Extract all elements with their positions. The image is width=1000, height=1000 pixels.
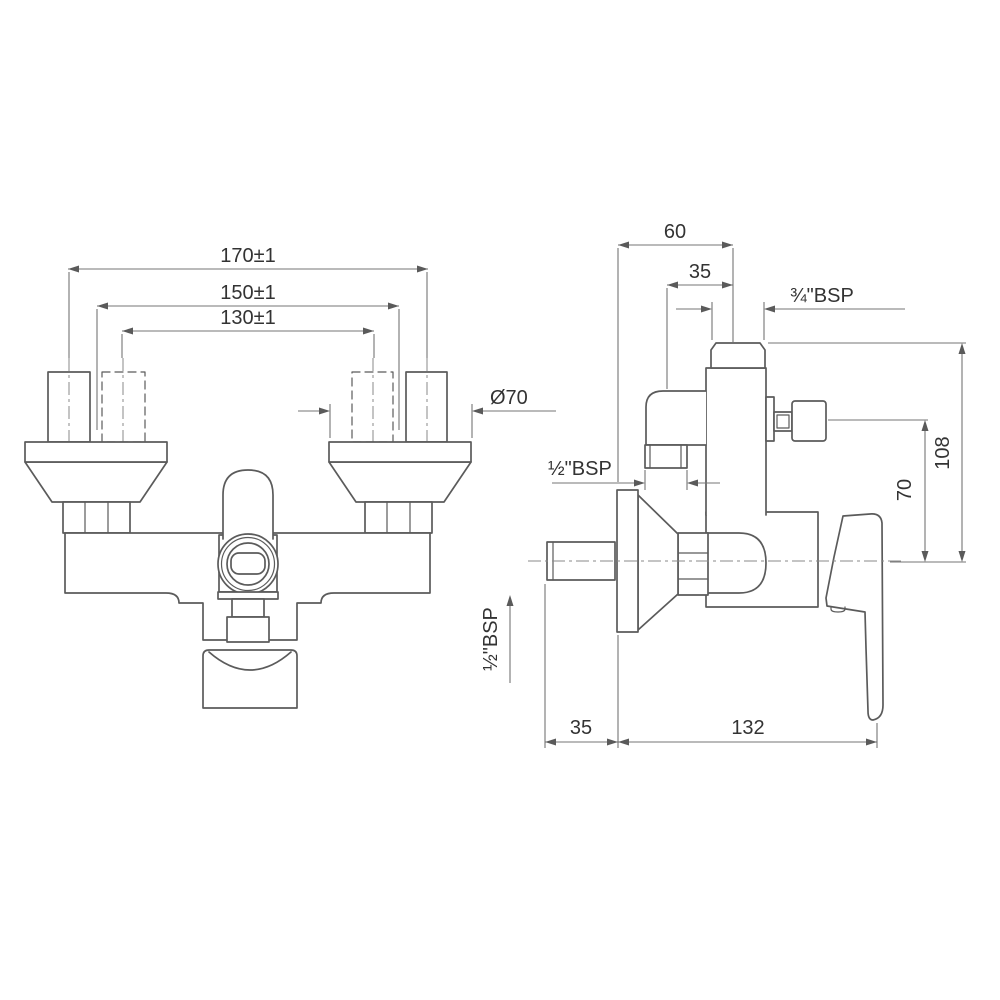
- dimension-35-bottom: 35: [545, 584, 618, 748]
- dimension-132: 132: [618, 717, 877, 748]
- callout-text-bsp-bottom: ½"BSP: [480, 607, 502, 671]
- shower-mixer-technical-drawing: 170±1 150±1 130±1 Ø70: [0, 0, 1000, 1000]
- inlet-pipes-front: [48, 358, 447, 455]
- side-elevation-view: 60 35 ¾"BSP ½"BSP: [480, 221, 966, 748]
- callout-text-bsp-top: ¾"BSP: [790, 285, 854, 307]
- dim-text-70: 70: [894, 479, 916, 501]
- drawing-canvas: 170±1 150±1 130±1 Ø70: [0, 0, 1000, 1000]
- dim-text-132: 132: [731, 717, 764, 739]
- dim-text-108: 108: [932, 436, 954, 469]
- dim-text-dia70: Ø70: [490, 387, 528, 409]
- bottom-outlet-front: [203, 650, 297, 708]
- callout-bsp-top: ¾"BSP: [676, 285, 905, 340]
- callout-text-bsp-left: ½"BSP: [548, 458, 612, 480]
- dim-text-60: 60: [664, 221, 686, 243]
- right-wall-flange: [329, 442, 471, 533]
- riser-body-side: [645, 343, 766, 515]
- dimension-130: 130±1: [122, 307, 374, 358]
- dim-text-130: 130±1: [220, 307, 275, 329]
- dim-text-150: 150±1: [220, 282, 275, 304]
- callout-bsp-bottom: ½"BSP: [480, 595, 514, 683]
- left-wall-flange: [25, 442, 167, 533]
- dim-text-35-bottom: 35: [570, 717, 592, 739]
- lever-and-dial-front: [218, 470, 278, 642]
- dim-text-35-top: 35: [689, 261, 711, 283]
- callout-bsp-left: ½"BSP: [548, 458, 720, 490]
- front-elevation-view: 170±1 150±1 130±1 Ø70: [25, 245, 556, 708]
- dim-text-170: 170±1: [220, 245, 275, 267]
- diverter-knob-side: [766, 397, 826, 441]
- lever-handle-side: [826, 514, 883, 720]
